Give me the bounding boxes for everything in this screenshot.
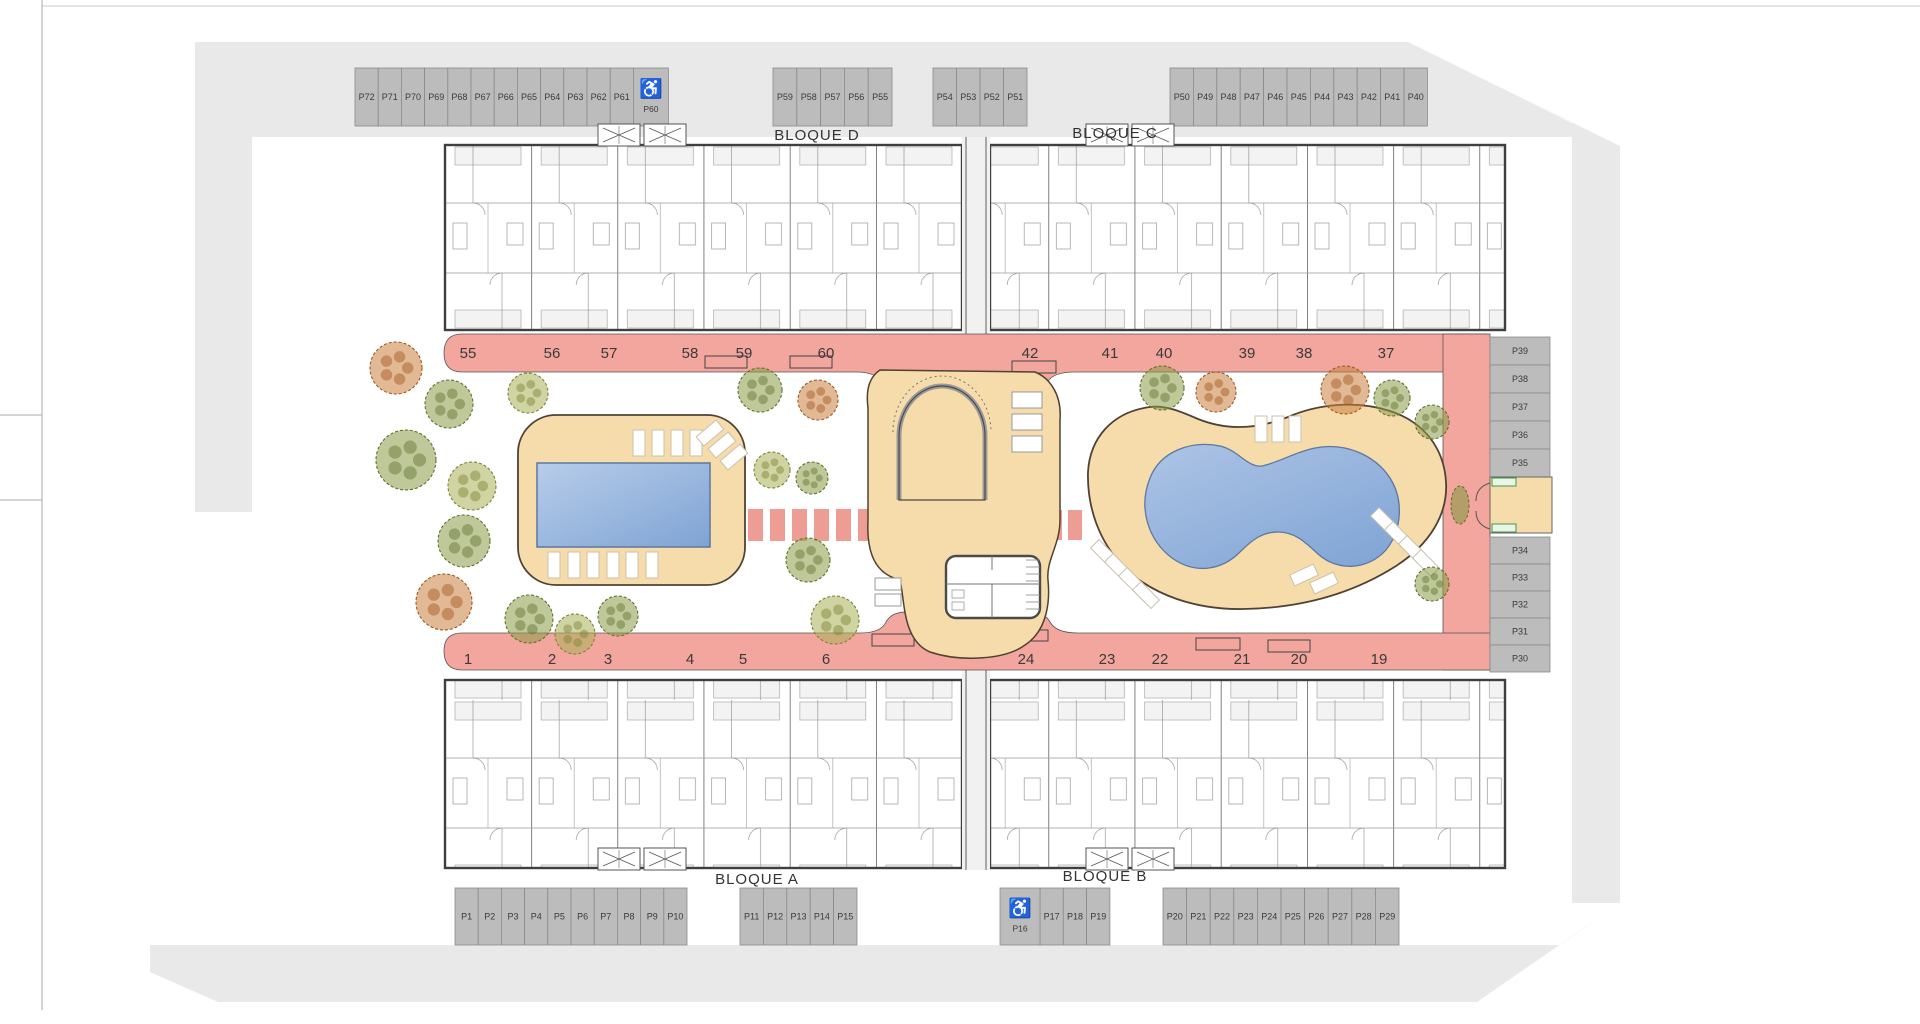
tree: [786, 538, 830, 582]
walkway-number: 22: [1152, 651, 1169, 668]
tree-foliage: [841, 615, 852, 626]
parking-stall-label: P6: [577, 912, 588, 922]
tree: [1415, 567, 1449, 601]
parking-stall-label: P2: [484, 912, 495, 922]
tree-foliage: [428, 603, 440, 615]
tree-foliage: [1391, 386, 1399, 394]
tree-foliage: [442, 584, 454, 596]
bench: [875, 594, 901, 606]
tree-foliage: [606, 617, 615, 626]
parking-stall-label: P22: [1214, 912, 1230, 922]
tree-canopy: [796, 462, 828, 494]
building-bloque-a: [445, 680, 962, 868]
tree-canopy: [1140, 366, 1184, 410]
tree-foliage: [404, 441, 417, 454]
tree-foliage: [1422, 423, 1429, 430]
tree-foliage: [795, 549, 805, 559]
tree-foliage: [1431, 588, 1438, 595]
tree-foliage: [616, 620, 625, 629]
parking-stall-label: P23: [1238, 912, 1254, 922]
tree-foliage: [447, 409, 458, 420]
tree-foliage: [1167, 383, 1177, 393]
parking-stall-label: P48: [1220, 92, 1236, 102]
tree-foliage: [381, 355, 392, 366]
parking-stall-label: P40: [1408, 92, 1424, 102]
walkway-number: 41: [1102, 345, 1119, 362]
tree-foliage: [1381, 399, 1389, 407]
tree-foliage: [1436, 580, 1443, 587]
parking-stall-label: P63: [567, 92, 583, 102]
tree-foliage: [516, 383, 525, 392]
tree-foliage: [470, 535, 481, 546]
tree-foliage: [811, 481, 818, 488]
walkway-number: 21: [1234, 651, 1251, 668]
tree-foliage: [771, 458, 779, 466]
tree-foliage: [563, 635, 572, 644]
tree-foliage: [442, 608, 454, 620]
parking-stall-label: P33: [1512, 573, 1528, 583]
stepping-stone: [770, 509, 785, 541]
tree: [798, 380, 838, 420]
stepping-stone: [748, 509, 763, 541]
tree-canopy: [376, 430, 436, 490]
stepping-stone: [836, 509, 851, 541]
parking-stall-label: P32: [1512, 600, 1528, 610]
tree-foliage: [402, 362, 413, 373]
tree-foliage: [533, 389, 542, 398]
tree-foliage: [1221, 388, 1230, 397]
walkway-number: 4: [686, 651, 694, 668]
tree-canopy: [1374, 380, 1410, 416]
parking-stall-label: P55: [872, 92, 888, 102]
parking-stall-label: P41: [1384, 92, 1400, 102]
tree-canopy: [438, 515, 490, 567]
tree-canopy: [738, 368, 782, 412]
tree-foliage: [747, 379, 757, 389]
parking-stall-label: P24: [1261, 912, 1277, 922]
tree: [1415, 405, 1449, 439]
tree-foliage: [527, 624, 538, 635]
handicap-icon: ♿: [1008, 897, 1032, 920]
parking-stall-label: P1: [461, 912, 472, 922]
tree-foliage: [1343, 395, 1354, 406]
tree-foliage: [823, 396, 832, 405]
walkway-number: 19: [1371, 651, 1388, 668]
parking-stall-label: P61: [614, 92, 630, 102]
parking-stall-label: P13: [790, 912, 806, 922]
parking-stall-label: P10: [667, 912, 683, 922]
tree-foliage: [606, 606, 615, 615]
tree-foliage: [1160, 374, 1170, 384]
tree-foliage: [526, 380, 535, 389]
tree: [1321, 366, 1369, 414]
parking-stall-label: P19: [1090, 912, 1106, 922]
tree-foliage: [806, 546, 816, 556]
walkway-number: 2: [548, 651, 556, 668]
tree-canopy: [1321, 366, 1369, 414]
building-bloque-b: [990, 680, 1505, 868]
parking-stall-label: P66: [498, 92, 514, 102]
walkway-bench: [1196, 638, 1240, 650]
stepping-stone: [1068, 510, 1082, 540]
walkway-number: 38: [1296, 345, 1313, 362]
tree-foliage: [1160, 393, 1170, 403]
tree-foliage: [747, 391, 757, 401]
tree-foliage: [1351, 385, 1362, 396]
tree-foliage: [388, 461, 401, 474]
tree-foliage: [563, 624, 572, 633]
tree: [754, 452, 790, 488]
tree: [598, 596, 638, 636]
tree-canopy: [1415, 567, 1449, 601]
tree-foliage: [413, 453, 426, 466]
entrance-hedge: [1451, 486, 1469, 524]
parking-stall-label: P72: [359, 92, 375, 102]
site-plan-sheet: P72P71P70P69P68P67P66P65P64P63P62P61P59P…: [0, 0, 1920, 1024]
tree-canopy: [811, 596, 859, 644]
tree-foliage: [381, 369, 392, 380]
tree: [438, 515, 490, 567]
tree-foliage: [758, 376, 768, 386]
parking-stall-label: P65: [521, 92, 537, 102]
parking-stall-label: P71: [382, 92, 398, 102]
tree-foliage: [1331, 391, 1342, 402]
tree-canopy: [598, 596, 638, 636]
walkway-number: 60: [818, 345, 835, 362]
bench: [1012, 414, 1042, 430]
road-bottom: [150, 903, 1620, 1002]
tree: [508, 373, 548, 413]
tree-foliage: [1436, 418, 1443, 425]
tree-foliage: [478, 481, 489, 492]
tree-foliage: [765, 385, 775, 395]
pool-house-walls: [946, 556, 1040, 618]
tree-foliage: [428, 588, 440, 600]
parking-stall-label: P51: [1007, 92, 1023, 102]
parking-stall-label: P37: [1512, 402, 1528, 412]
parking-stall-label: P3: [507, 912, 518, 922]
tree: [448, 462, 496, 510]
tree-foliage: [1149, 389, 1159, 399]
sun-lounger: [652, 430, 664, 456]
parking-stall-label: P47: [1244, 92, 1260, 102]
tree-foliage: [470, 470, 481, 481]
walkway-number: 40: [1156, 345, 1173, 362]
parking-stall-label: P14: [814, 912, 830, 922]
tree-foliage: [1149, 377, 1159, 387]
tree-foliage: [1204, 382, 1213, 391]
parking-stall-label: P67: [475, 92, 491, 102]
parking-stall-label: P25: [1285, 912, 1301, 922]
parking-stall-label: P58: [801, 92, 817, 102]
sun-lounger: [671, 430, 683, 456]
tree-canopy: [425, 380, 473, 428]
tree-foliage: [821, 621, 832, 632]
block-label-b: BLOQUE B: [1063, 868, 1148, 885]
tree: [370, 342, 422, 394]
tree-foliage: [573, 638, 582, 647]
bench: [1012, 436, 1042, 452]
tree-foliage: [761, 461, 769, 469]
tree-canopy: [786, 538, 830, 582]
parking-stall-label: P26: [1308, 912, 1324, 922]
tree-foliage: [526, 397, 535, 406]
tree-canopy: [1196, 372, 1236, 412]
walkway-bench: [872, 634, 914, 646]
parking-stall-label: P53: [960, 92, 976, 102]
parking-stall-label: P69: [428, 92, 444, 102]
tree-foliage: [462, 524, 473, 535]
parking-stall-label: P62: [591, 92, 607, 102]
parking-stall-label: P11: [744, 912, 759, 922]
entrance-label-green-bottom: [1492, 524, 1516, 532]
tree: [1140, 366, 1184, 410]
building-bloque-c: [990, 145, 1505, 330]
tree-foliage: [816, 404, 825, 413]
tree-foliage: [515, 607, 526, 618]
bench: [1012, 392, 1042, 408]
parking-stall-label: P28: [1356, 912, 1372, 922]
tree-foliage: [1391, 402, 1399, 410]
parking-stall-label: P35: [1512, 458, 1528, 468]
sun-lounger: [568, 552, 580, 578]
walkway-number: 55: [460, 345, 477, 362]
parking-stall-label: P39: [1512, 346, 1528, 356]
tree-foliage: [447, 388, 458, 399]
tree-canopy: [416, 574, 472, 630]
parking-stall-label: P59: [777, 92, 793, 102]
tree-canopy: [505, 595, 553, 643]
handicap-icon: ♿: [639, 77, 663, 100]
parking-stall-label: P17: [1044, 912, 1060, 922]
tree: [376, 430, 436, 490]
parking-stall-label: P56: [848, 92, 864, 102]
tree: [505, 595, 553, 643]
tree-foliage: [1204, 393, 1213, 402]
tree-foliage: [1381, 389, 1389, 397]
tree-foliage: [404, 466, 417, 479]
tree-foliage: [811, 468, 818, 475]
sun-lounger: [587, 552, 599, 578]
parking-stall-label: P20: [1167, 912, 1183, 922]
parking-stall-label: P15: [837, 912, 853, 922]
tree-foliage: [816, 387, 825, 396]
tree-foliage: [833, 625, 844, 636]
tree-foliage: [394, 351, 405, 362]
tree: [1374, 380, 1410, 416]
parking-stall-label: P38: [1512, 374, 1528, 384]
tree-foliage: [1343, 374, 1354, 385]
tree-canopy: [754, 452, 790, 488]
building-bloque-d: [445, 145, 962, 330]
tree-canopy: [555, 614, 595, 654]
parking-stall-label: P50: [1174, 92, 1190, 102]
tree-foliage: [535, 614, 546, 625]
tree-foliage: [1214, 379, 1223, 388]
tree-foliage: [580, 630, 589, 639]
parking-stall-label: P49: [1197, 92, 1213, 102]
tree: [738, 368, 782, 412]
tree-foliage: [1396, 394, 1404, 402]
parking-stall-label: P52: [984, 92, 1000, 102]
parking-stall-label: P30: [1512, 654, 1528, 664]
tree-foliage: [435, 405, 446, 416]
tree-canopy: [370, 342, 422, 394]
road-left: [195, 42, 252, 512]
tree-foliage: [462, 546, 473, 557]
parking-stall-label: P70: [405, 92, 421, 102]
parking-stall-label: P12: [767, 912, 783, 922]
parking-stall-label: P57: [824, 92, 840, 102]
tree-foliage: [1431, 573, 1438, 580]
tree-foliage: [455, 399, 466, 410]
tree-foliage: [776, 466, 784, 474]
parking-stall-label: P5: [554, 912, 565, 922]
parking-stall-label: P45: [1291, 92, 1307, 102]
walkway-number: 37: [1378, 345, 1395, 362]
tree-foliage: [806, 401, 815, 410]
block-label-d: BLOQUE D: [774, 127, 860, 144]
tree-foliage: [573, 621, 582, 630]
tree-foliage: [833, 604, 844, 615]
walkway-number: 1: [464, 651, 472, 668]
parking-stall-label: P18: [1067, 912, 1083, 922]
tree-foliage: [435, 392, 446, 403]
tree-foliage: [527, 603, 538, 614]
tree-foliage: [616, 603, 625, 612]
tree-foliage: [449, 528, 460, 539]
block-label-a: BLOQUE A: [715, 871, 799, 888]
parking-stall-label: P42: [1361, 92, 1377, 102]
pool-house: [946, 556, 1040, 618]
tree-foliage: [458, 487, 469, 498]
walkway-number: 24: [1018, 651, 1035, 668]
tree-foliage: [1422, 576, 1429, 583]
stepping-stone: [814, 509, 829, 541]
tree-foliage: [1431, 426, 1438, 433]
parking-stall-label: P64: [544, 92, 560, 102]
tree-foliage: [813, 555, 823, 565]
walkway-number: 42: [1022, 345, 1039, 362]
tree-foliage: [470, 491, 481, 502]
parking-stall-label: P60: [643, 104, 658, 114]
walkway-number: 23: [1099, 651, 1116, 668]
tree-foliage: [806, 565, 816, 575]
site-plan-drawing: P72P71P70P69P68P67P66P65P64P63P62P61P59P…: [0, 0, 1920, 1024]
tree-foliage: [1431, 411, 1438, 418]
tree-foliage: [816, 474, 823, 481]
tree-foliage: [806, 390, 815, 399]
sun-lounger: [646, 552, 658, 578]
tree-foliage: [761, 471, 769, 479]
parking-stall-label: P43: [1337, 92, 1353, 102]
tree-foliage: [1422, 585, 1429, 592]
tree: [416, 574, 472, 630]
sun-lounger: [1255, 416, 1267, 442]
parking-stall-label: P9: [647, 912, 658, 922]
walkway-number: 57: [601, 345, 618, 362]
parking-stall-label: P29: [1379, 912, 1395, 922]
entrance-label-green-top: [1492, 478, 1516, 486]
tree-foliage: [758, 395, 768, 405]
block-label-c: BLOQUE C: [1072, 125, 1158, 142]
tree-foliage: [1422, 414, 1429, 421]
tree-foliage: [450, 596, 462, 608]
tree: [1196, 372, 1236, 412]
walkway-number: 6: [822, 651, 830, 668]
tree-foliage: [1214, 396, 1223, 405]
tree: [796, 462, 828, 494]
sun-lounger: [548, 552, 560, 578]
walkway-number: 5: [739, 651, 747, 668]
tree-canopy: [508, 373, 548, 413]
walkway-number: 39: [1239, 345, 1256, 362]
tree-foliage: [771, 474, 779, 482]
parking-stall-label: P54: [937, 92, 953, 102]
parking-stall-label: P27: [1332, 912, 1348, 922]
sun-lounger: [633, 430, 645, 456]
walkway-number: 59: [736, 345, 753, 362]
parking-stall-label: P31: [1512, 627, 1528, 637]
tree-foliage: [388, 445, 401, 458]
parking-stall-label: P4: [531, 912, 542, 922]
parking-stall-label: P44: [1314, 92, 1330, 102]
tree-canopy: [448, 462, 496, 510]
bench: [875, 578, 901, 590]
walkway-number: 3: [604, 651, 612, 668]
parking-stall-label: P7: [600, 912, 611, 922]
tree-foliage: [458, 474, 469, 485]
tree-foliage: [394, 373, 405, 384]
tree-canopy: [1415, 405, 1449, 439]
parking-stall-label: P8: [623, 912, 634, 922]
walkway-number: 58: [682, 345, 699, 362]
tree-foliage: [803, 479, 810, 486]
left-pool: [537, 463, 710, 547]
walkway-number: 56: [544, 345, 561, 362]
parking-stall-label: P36: [1512, 430, 1528, 440]
parking-stall-label: P46: [1267, 92, 1283, 102]
sun-lounger: [1272, 416, 1284, 442]
sun-lounger: [626, 552, 638, 578]
tree: [425, 380, 473, 428]
sun-lounger: [1289, 416, 1301, 442]
tree-foliage: [623, 612, 632, 621]
sun-lounger: [607, 552, 619, 578]
parking-stall-label: P21: [1190, 912, 1206, 922]
tree: [555, 614, 595, 654]
walkway-number: 20: [1291, 651, 1308, 668]
tree-foliage: [795, 561, 805, 571]
parking-stall-label: P34: [1512, 546, 1528, 556]
tree-foliage: [515, 620, 526, 631]
tree-foliage: [1331, 378, 1342, 389]
tree-foliage: [821, 608, 832, 619]
tree-foliage: [803, 470, 810, 477]
stepping-stone: [792, 509, 807, 541]
tree-foliage: [449, 542, 460, 553]
tree-foliage: [516, 394, 525, 403]
tree: [811, 596, 859, 644]
parking-stall-label: P16: [1012, 924, 1027, 934]
parking-stall-label: P68: [451, 92, 467, 102]
tree-canopy: [798, 380, 838, 420]
